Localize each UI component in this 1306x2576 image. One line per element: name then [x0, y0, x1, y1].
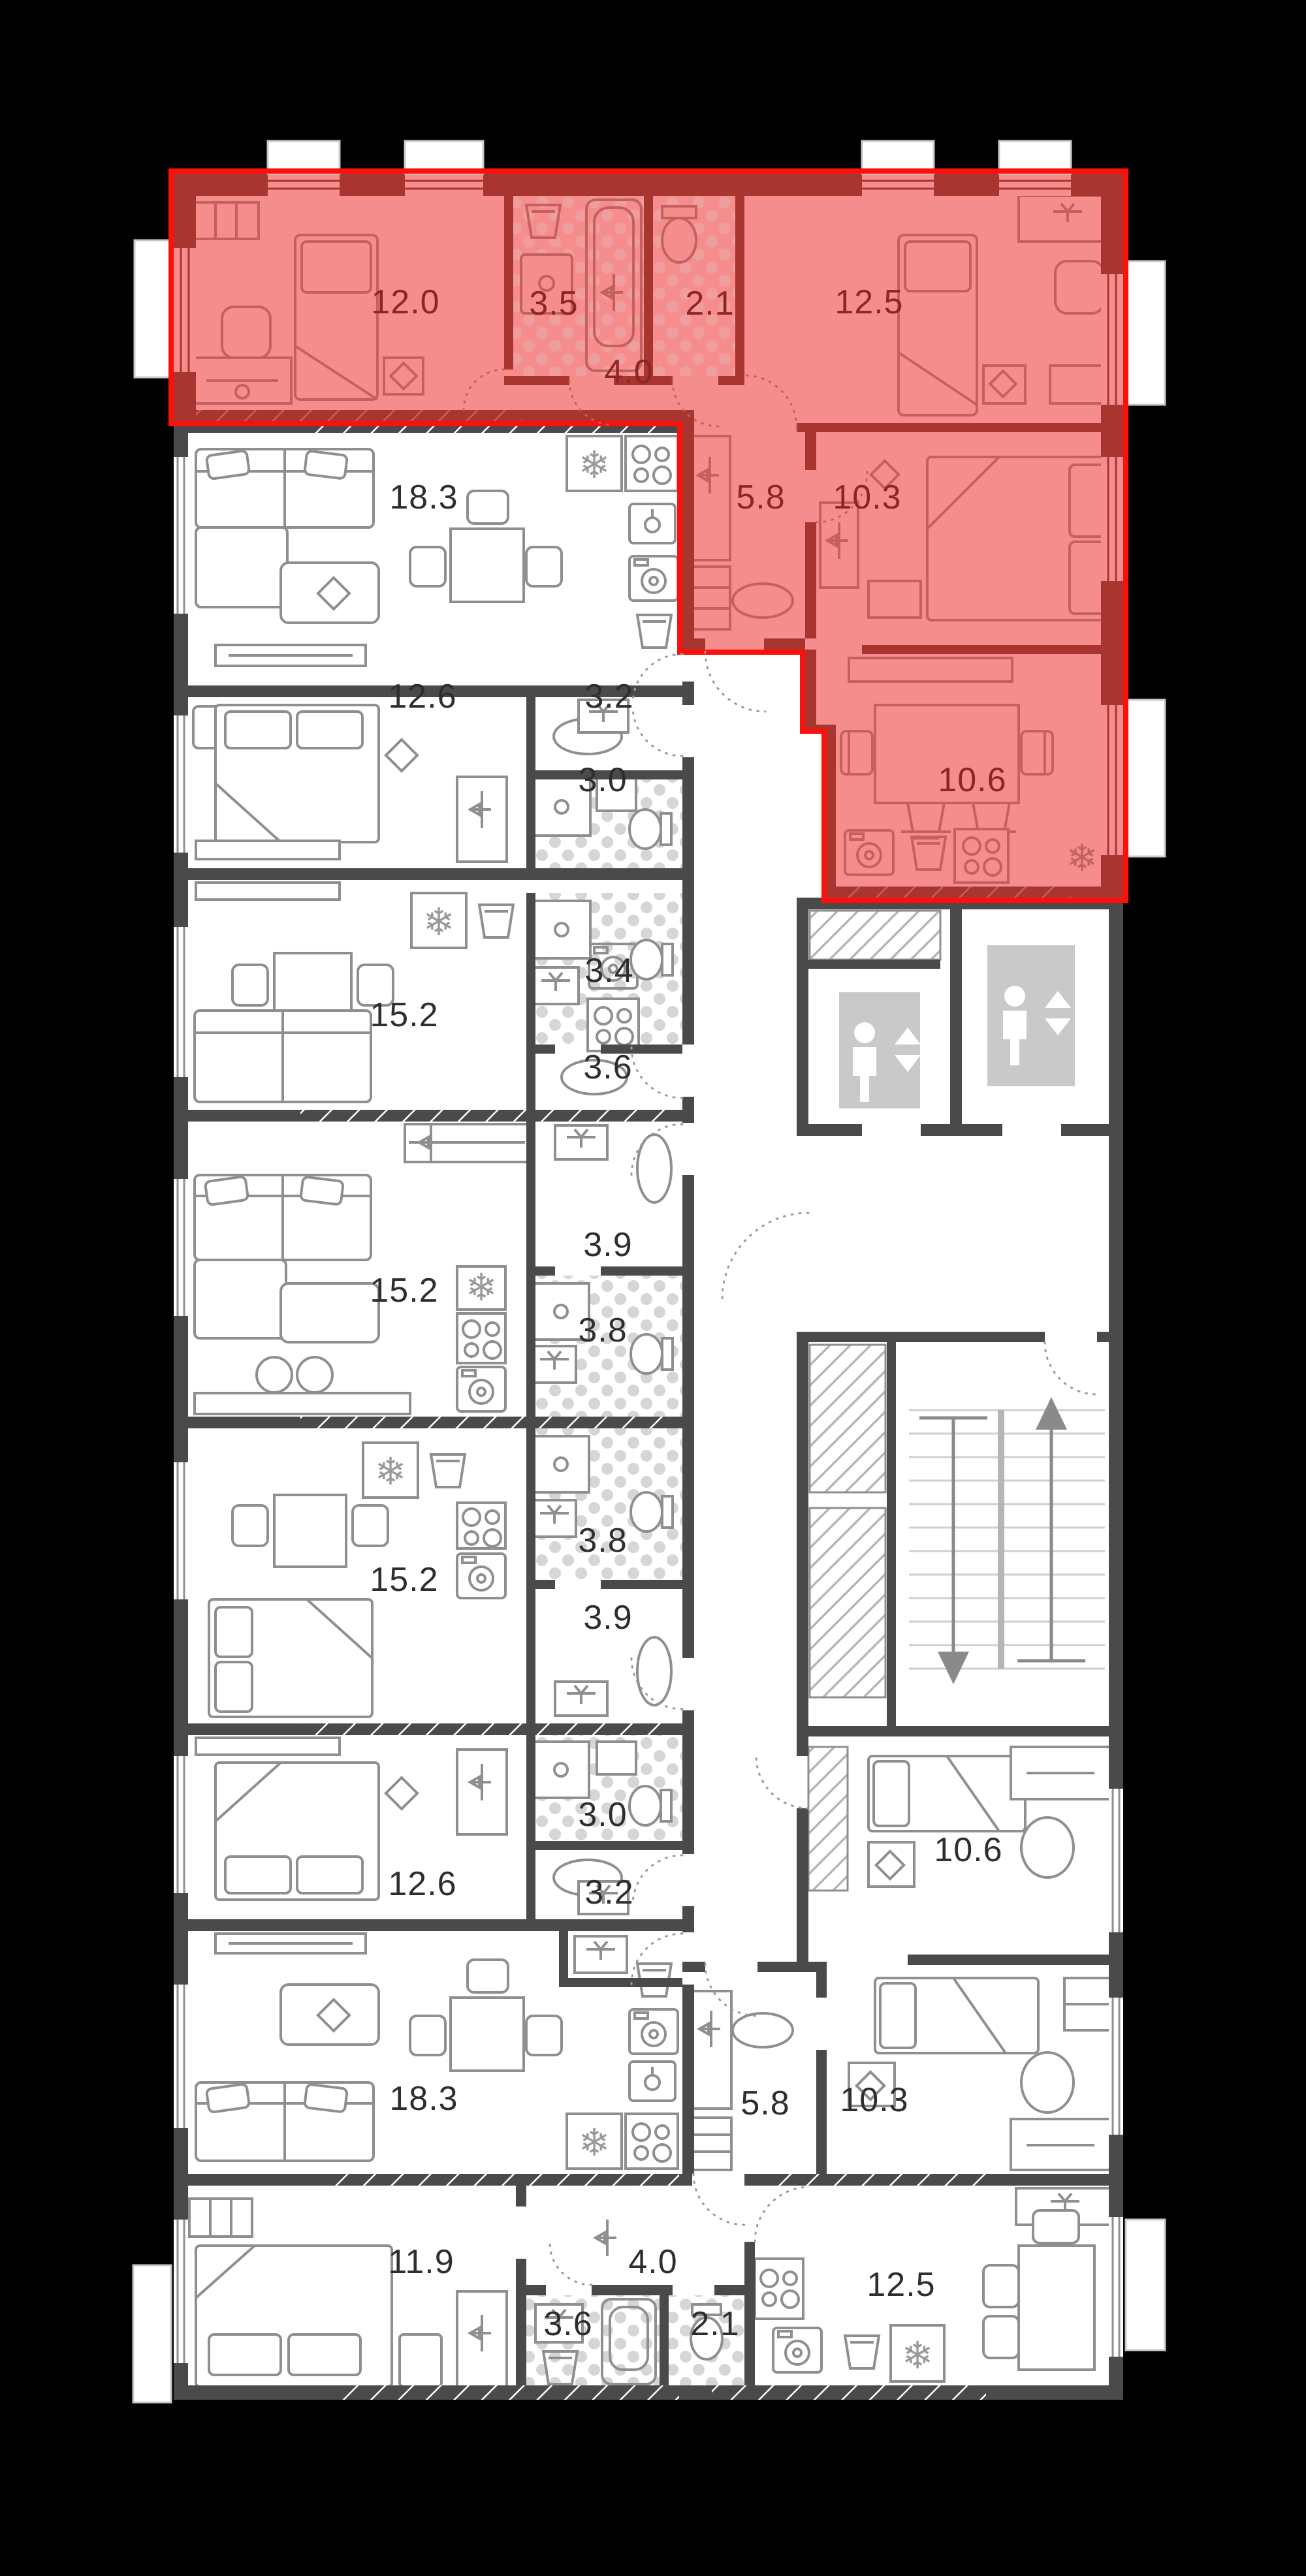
- window-bay: [135, 240, 172, 377]
- elevator-panel: [839, 992, 920, 1108]
- fridge-icon: ❄: [423, 901, 455, 943]
- room-area-label: 3.2: [584, 1873, 633, 1912]
- room-area-label: 2.1: [690, 2304, 739, 2344]
- room-area-label: 3.8: [578, 1311, 627, 1350]
- room-area-label: 12.6: [388, 677, 456, 716]
- room-area-label: 3.6: [583, 1048, 632, 1087]
- room-area-label: 2.1: [685, 284, 734, 323]
- window: [1109, 1789, 1123, 2357]
- room-area-label: 12.5: [867, 2265, 935, 2304]
- room-area-label: 4.0: [628, 2242, 677, 2282]
- window-bay: [1126, 700, 1165, 856]
- room-area-label: 11.9: [388, 2242, 454, 2282]
- window-bay: [1126, 261, 1165, 405]
- fridge-icon: ❄: [466, 1266, 498, 1309]
- fridge-icon: ❄: [902, 2334, 934, 2377]
- room-area-label: 4.0: [604, 353, 653, 392]
- room-area-label: 3.0: [578, 761, 627, 800]
- room-area-label: 15.2: [370, 996, 438, 1035]
- fridge-icon: ❄: [1066, 837, 1098, 879]
- room-area-label: 3.0: [578, 1795, 627, 1834]
- room-area-label: 12.0: [371, 283, 439, 322]
- fridge-icon: ❄: [375, 1451, 407, 1493]
- room-area-label: 3.4: [584, 951, 633, 990]
- room-area-label: 3.9: [583, 1598, 632, 1637]
- fridge-icon: ❄: [579, 2122, 611, 2164]
- room-area-label: 3.9: [583, 1225, 632, 1264]
- room-area-label: 12.6: [388, 1864, 456, 1904]
- room-area-label: 3.5: [529, 284, 578, 323]
- room-area-label: 12.5: [835, 283, 903, 322]
- room-area-label: 3.8: [578, 1521, 627, 1560]
- room-area-label: 15.2: [370, 1271, 438, 1310]
- room-area-label: 10.6: [938, 761, 1006, 800]
- window-bay: [1126, 2220, 1165, 2350]
- window-bay: [133, 2265, 171, 2402]
- room-area-label: 10.6: [934, 1830, 1002, 1870]
- room-area-label: 10.3: [833, 478, 901, 517]
- room-area-label: 10.3: [840, 2081, 908, 2120]
- fridge-icon: ❄: [579, 444, 611, 486]
- floor-plan-canvas: ❄ ❄ ❄ ❄: [0, 0, 1306, 2576]
- room-area-label: 5.8: [736, 478, 785, 517]
- room-area-label: 18.3: [389, 478, 458, 517]
- room-area-label: 3.2: [584, 677, 633, 716]
- room-area-label: 18.3: [389, 2079, 458, 2118]
- room-area-label: 3.6: [543, 2304, 592, 2344]
- room-area-label: 5.8: [741, 2084, 789, 2123]
- room-area-label: 15.2: [370, 1560, 438, 1599]
- elevator-panel: [987, 945, 1075, 1086]
